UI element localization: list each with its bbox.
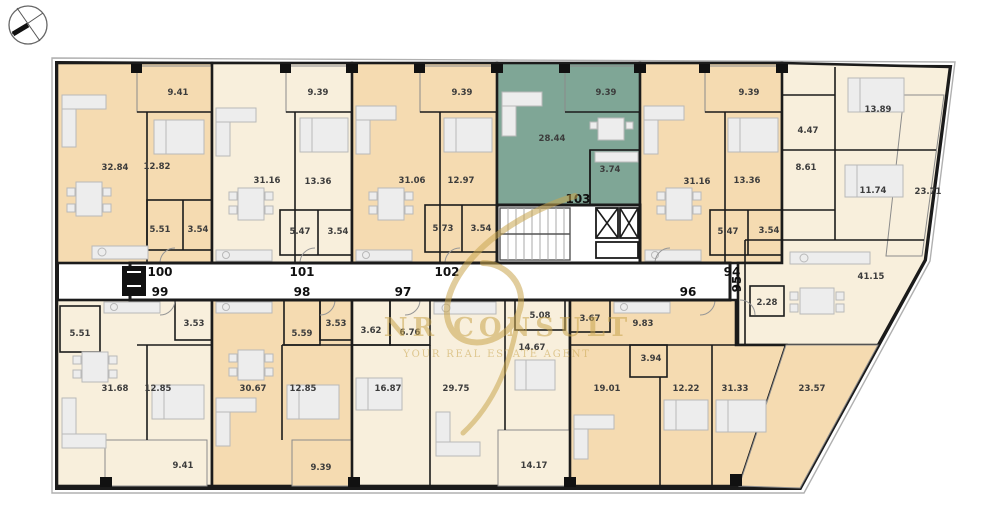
- area-label: 5.51: [150, 225, 171, 235]
- unit-99: 31.68 12.85 9.41 5.51 3.53: [57, 300, 212, 486]
- unit-label-97: 97: [395, 285, 412, 299]
- area-label: 5.59: [292, 329, 313, 339]
- unit-101: 31.16 13.36 9.39 5.47 3.54: [212, 63, 352, 263]
- area-label: 13.36: [305, 177, 332, 187]
- unit-label-100: 100: [147, 265, 172, 279]
- area-label: 11.74: [860, 186, 887, 196]
- area-label: 31.33: [722, 384, 749, 394]
- area-label: 31.06: [399, 176, 426, 186]
- floor-plan-drawing: 32.84 12.82 9.41 5.51 3.54 31.16 13.36 9…: [0, 0, 1000, 512]
- area-label: 9.83: [633, 319, 654, 329]
- area-label: 13.36: [734, 176, 761, 186]
- area-label: 5.47: [290, 227, 311, 237]
- area-label: 31.68: [102, 384, 129, 394]
- area-label: 3.54: [328, 227, 349, 237]
- unit-label-95: 95: [730, 276, 744, 293]
- elevator-shafts: [596, 208, 638, 258]
- area-label: 19.01: [594, 384, 621, 394]
- area-label: 3.54: [188, 225, 209, 235]
- area-label: 23.57: [799, 384, 826, 394]
- area-label: 16.87: [375, 384, 402, 394]
- area-label: 8.61: [796, 163, 817, 173]
- area-label: 12.85: [290, 384, 317, 394]
- unit-label-101: 101: [289, 265, 314, 279]
- area-label: 5.51: [70, 329, 91, 339]
- area-label: 9.39: [452, 88, 473, 98]
- area-label: 12.97: [448, 176, 475, 186]
- unit-label-98: 98: [294, 285, 311, 299]
- unit-label-99: 99: [152, 285, 169, 299]
- area-label: 3.54: [471, 224, 492, 234]
- unit-100: 32.84 12.82 9.41 5.51 3.54: [57, 63, 212, 263]
- unit-label-96: 96: [680, 285, 697, 299]
- area-label: 30.67: [240, 384, 267, 394]
- area-label: 9.41: [173, 461, 194, 471]
- staircase: [500, 208, 570, 260]
- unit-103: 28.44 9.39 3.74: [497, 63, 640, 205]
- unit-94: 31.16 13.36 9.39 5.47 3.54: [640, 63, 782, 263]
- area-label: 41.15: [858, 272, 885, 282]
- area-label: 3.53: [184, 319, 205, 329]
- area-label: 3.54: [759, 226, 780, 236]
- area-label: 2.28: [757, 298, 778, 308]
- area-label: 31.16: [684, 177, 711, 187]
- unit-97-terrace: [498, 430, 570, 486]
- area-label: 5.73: [433, 224, 454, 234]
- area-label: 12.85: [145, 384, 172, 394]
- unit-98: 30.67 12.85 9.39 5.59 3.53: [212, 300, 352, 486]
- area-label: 3.94: [641, 354, 662, 364]
- north-compass-icon: [9, 6, 47, 44]
- floor-plan-page: 32.84 12.82 9.41 5.51 3.54 31.16 13.36 9…: [0, 0, 1000, 512]
- area-label: 3.74: [600, 165, 621, 175]
- area-label: 9.41: [168, 88, 189, 98]
- area-label: 28.44: [539, 134, 566, 144]
- area-label: 9.39: [311, 463, 332, 473]
- area-label: 29.75: [443, 384, 470, 394]
- area-label: 9.39: [739, 88, 760, 98]
- area-label: 12.82: [144, 162, 171, 172]
- area-label: 32.84: [102, 163, 129, 173]
- watermark-brand: NR CONSULT: [384, 313, 633, 343]
- area-label: 14.17: [521, 461, 548, 471]
- watermark-tagline: YOUR REAL ESTATE AGENT: [402, 349, 590, 360]
- area-label: 23.71: [915, 187, 942, 197]
- area-label: 3.53: [326, 319, 347, 329]
- unit-102: 31.06 12.97 9.39 5.73 3.54: [352, 63, 497, 263]
- area-label: 9.39: [596, 88, 617, 98]
- area-label: 5.47: [718, 227, 739, 237]
- area-label: 31.16: [254, 176, 281, 186]
- area-label: 4.47: [798, 126, 819, 136]
- area-label: 3.62: [361, 326, 382, 336]
- area-label: 13.89: [865, 105, 892, 115]
- duct-shaft: [122, 266, 146, 296]
- area-label: 12.22: [673, 384, 700, 394]
- area-label: 9.39: [308, 88, 329, 98]
